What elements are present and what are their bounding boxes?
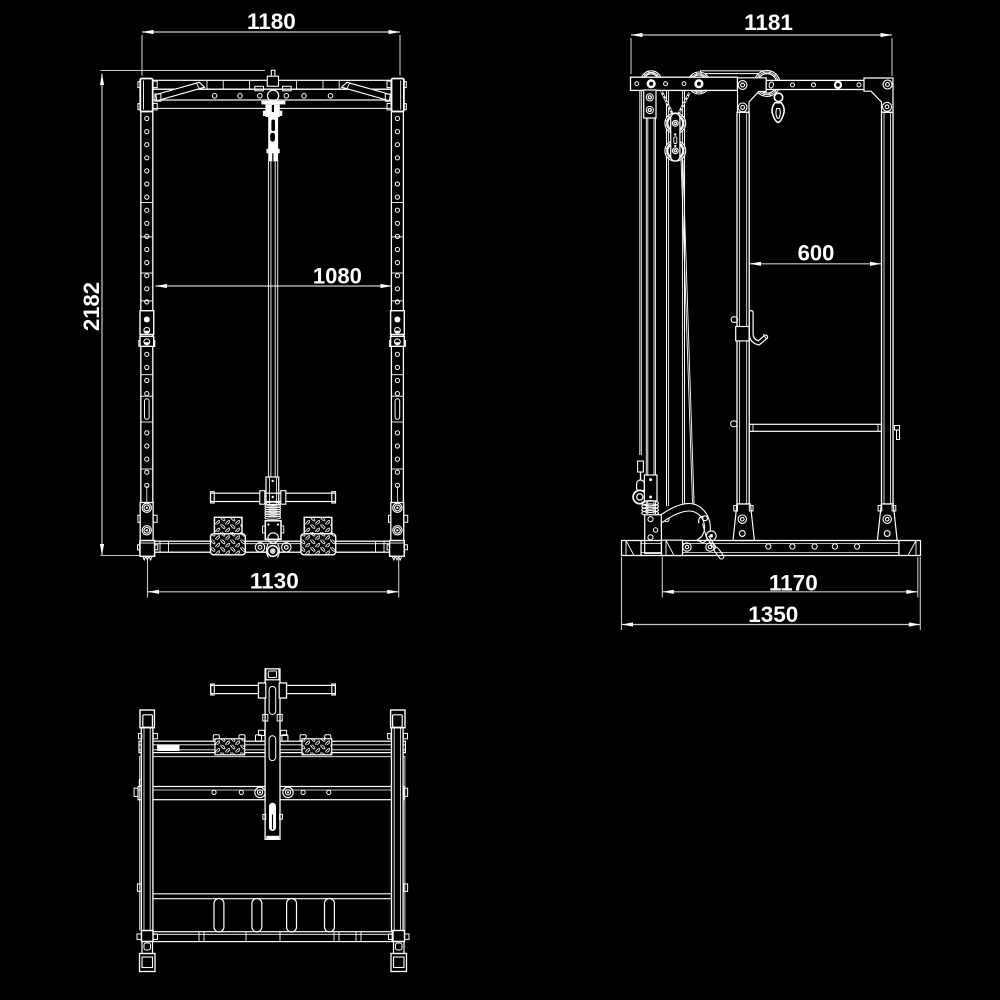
svg-text:1180: 1180 — [247, 9, 296, 34]
svg-text:1350: 1350 — [748, 602, 798, 627]
svg-text:600: 600 — [798, 241, 835, 266]
svg-text:1080: 1080 — [313, 264, 362, 289]
svg-text:1181: 1181 — [744, 10, 793, 35]
svg-text:2182: 2182 — [79, 282, 104, 331]
svg-text:1130: 1130 — [250, 569, 299, 594]
